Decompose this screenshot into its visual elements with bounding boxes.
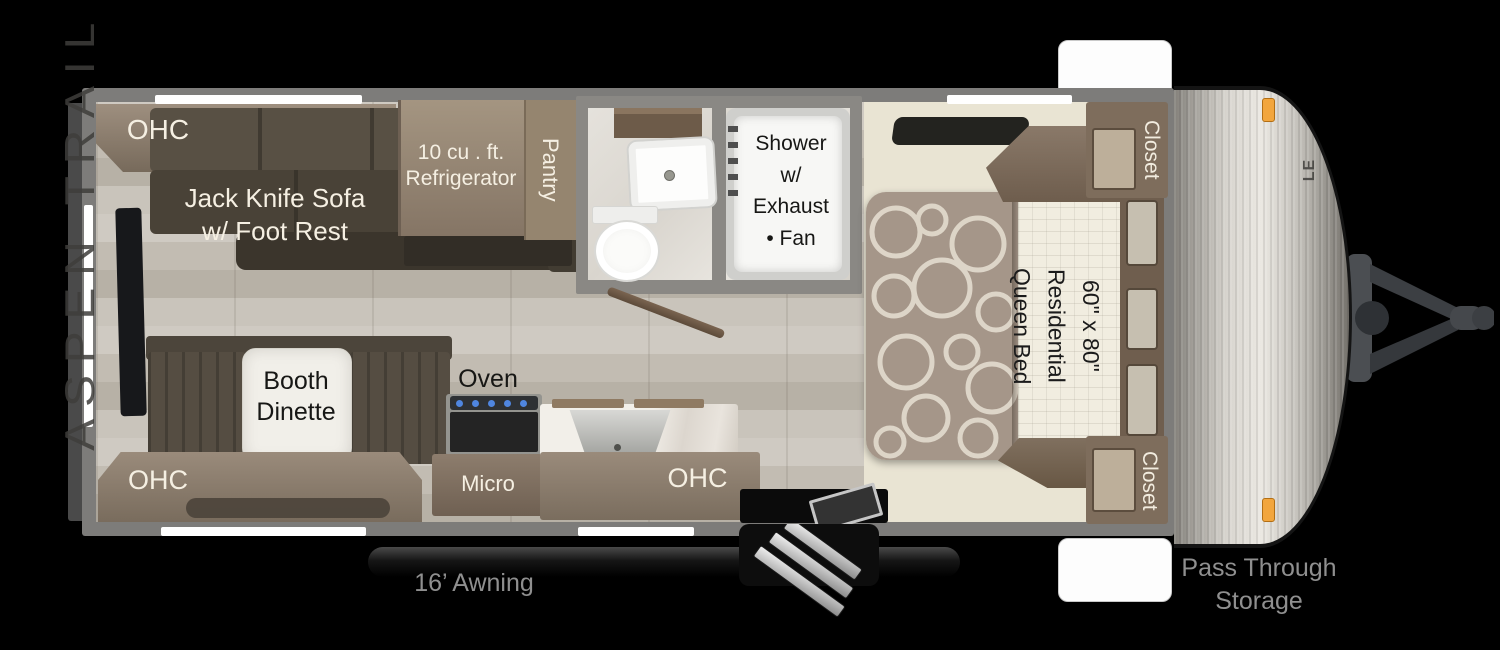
marker-light-bottom	[1262, 498, 1275, 522]
window-strip-top-right	[947, 95, 1072, 104]
oven-label: Oven	[438, 364, 538, 395]
window-strip-bottom-center	[578, 527, 694, 536]
sofa-label: Jack Knife Sofa w/ Foot Rest	[130, 182, 420, 247]
floorplan-stage: OHC Jack Knife Sofa w/ Foot Rest 10 cu .…	[0, 0, 1500, 650]
ohc-top-label: OHC	[112, 112, 204, 147]
counter-trim-left	[552, 399, 624, 408]
toilet-bowl	[594, 220, 660, 282]
dinette-bench-left	[148, 352, 246, 464]
pass-through-label: Pass Through Storage	[1170, 552, 1348, 617]
bed-label-wrap: 60" x 80" Residential Queen Bed	[998, 204, 1114, 448]
dinette-bench-right	[350, 352, 450, 464]
wardrobe-inset	[1126, 288, 1158, 350]
entry-steps-icon	[733, 524, 893, 624]
closet-top-label-wrap: Closet	[1136, 104, 1166, 196]
brand-badge-wrap: LE	[1298, 148, 1322, 192]
burner-knobs-icon	[456, 400, 463, 407]
counter-trim-right	[634, 399, 704, 408]
mirror-cabinet	[614, 108, 702, 138]
bed-circle-pattern	[866, 192, 1018, 460]
ohc-bottom-label: OHC	[112, 464, 204, 498]
closet-window	[1092, 128, 1136, 190]
front-cap	[1174, 86, 1352, 548]
wardrobe-inset	[1126, 200, 1158, 266]
window-strip-bottom-left	[161, 527, 366, 536]
sink-drain-icon	[664, 170, 675, 181]
awning-label: 16’ Awning	[396, 568, 552, 599]
under-cabinet-shadow	[404, 236, 572, 266]
closet-bottom-label-wrap: Closet	[1134, 438, 1164, 524]
pantry-label-wrap: Pantry	[524, 100, 576, 240]
bed-mattress	[866, 192, 1018, 460]
refrigerator-label: 10 cu . ft. Refrigerator	[398, 140, 524, 193]
oven-glass-front	[450, 412, 538, 452]
wardrobe-inset	[1126, 364, 1158, 436]
closet-bottom-label: Closet	[1137, 451, 1161, 511]
kitchen-sink-drain-icon	[614, 444, 621, 451]
dinette-label: Booth Dinette	[242, 366, 350, 429]
hitch-a-frame-icon	[1342, 248, 1494, 390]
pantry-label: Pantry	[537, 138, 563, 202]
brand-badge: LE	[1301, 159, 1319, 181]
cabinet-base-tray	[186, 498, 390, 518]
closet-top-label: Closet	[1139, 120, 1163, 180]
bedroom-tv-shelf	[891, 117, 1030, 145]
marker-light-top	[1262, 98, 1275, 122]
stove-burner-strip	[450, 396, 538, 410]
brand-text: ASPEN TRAIL	[56, 11, 104, 451]
microwave-label: Micro	[432, 470, 544, 498]
kitchen-ohc-label: OHC	[640, 462, 755, 496]
shower-label: Shower w/ Exhaust • Fan	[736, 128, 846, 254]
window-strip-top-left	[155, 95, 362, 104]
storage-cover-box	[1058, 538, 1172, 602]
bed-label: 60" x 80" Residential Queen Bed	[1004, 268, 1108, 384]
closet-window	[1092, 448, 1136, 512]
